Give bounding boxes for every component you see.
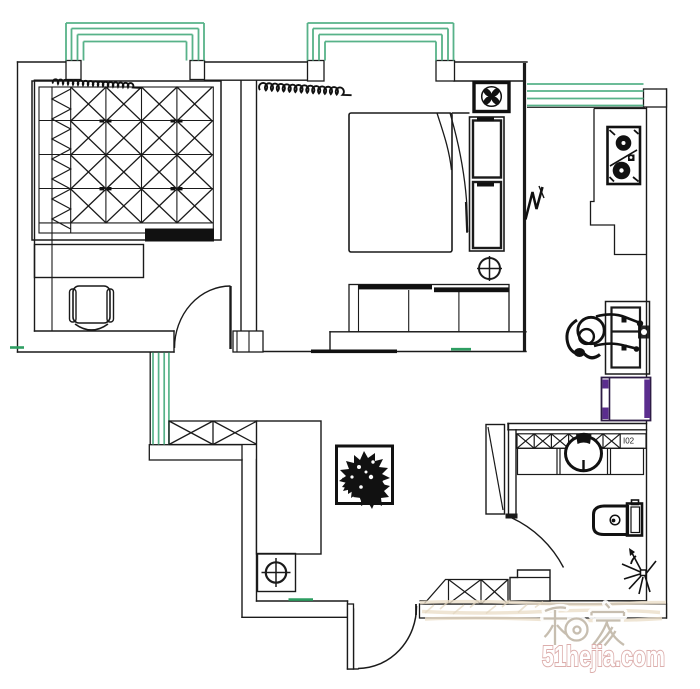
svg-text:51hejia.com: 51hejia.com xyxy=(542,641,665,673)
svg-text:I02: I02 xyxy=(623,437,635,446)
